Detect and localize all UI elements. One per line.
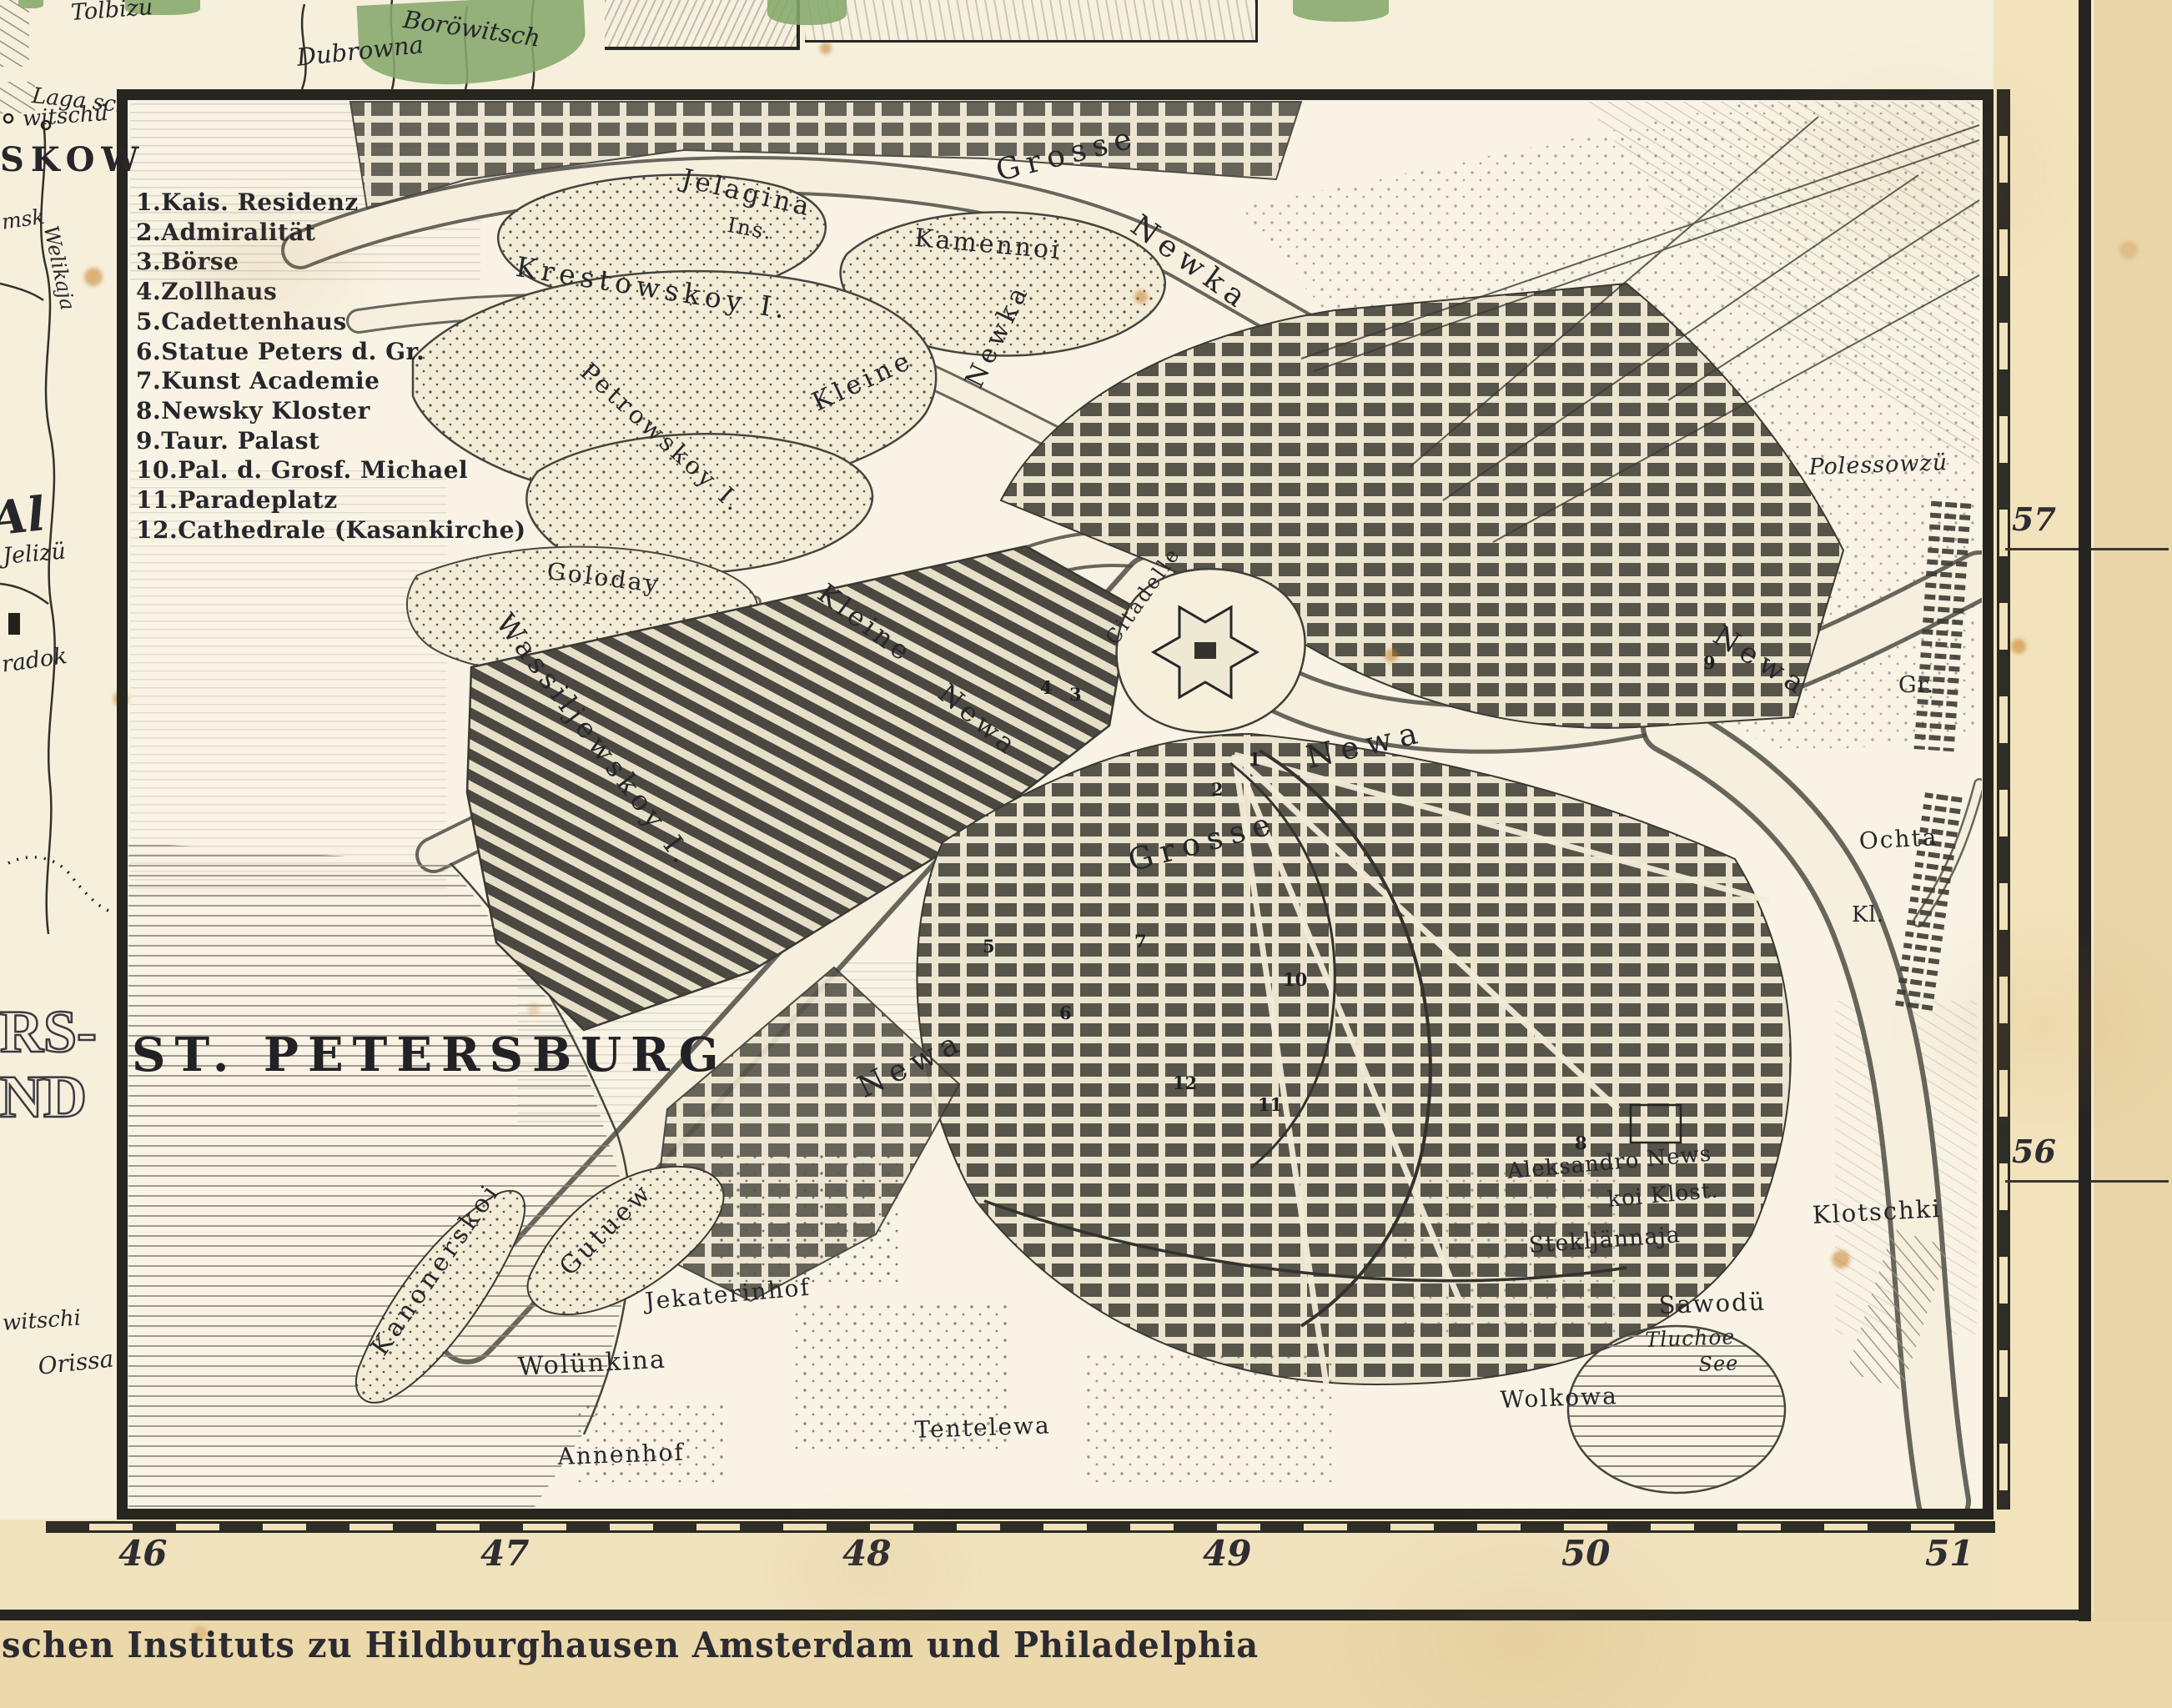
inset-border-frame [117, 89, 1994, 1520]
latitude-57: 57 [2012, 500, 2056, 538]
longitude-47: 47 [480, 1533, 529, 1574]
longitude-50: 50 [1561, 1533, 1610, 1574]
green-region-patch-3 [1293, 0, 1389, 22]
bottom-margin-rule [0, 1610, 2091, 1620]
antique-map-page: 1.Kais. Residenz2.Admiralität3.Börse4.Zo… [0, 0, 2172, 1708]
tower-symbol [8, 613, 20, 635]
longitude-48: 48 [842, 1533, 891, 1574]
top-map-fragment-strip [805, 0, 1258, 43]
outer-margin-rule [2079, 0, 2091, 1621]
latitude-graticule-bar [1997, 89, 2010, 1510]
green-region-patch-2 [767, 0, 847, 25]
town-circle-marker-2 [4, 114, 13, 123]
publisher-imprint: schen Instituts zu Hildburghausen Amster… [2, 1625, 1259, 1665]
longitude-graticule-bar [46, 1521, 1995, 1533]
boundary-dotted-line [8, 857, 115, 913]
latitude-56: 56 [2012, 1133, 2056, 1170]
margin-town-hatch-top [0, 0, 29, 67]
longitude-49: 49 [1203, 1533, 1251, 1574]
longitude-46: 46 [118, 1533, 167, 1574]
longitude-51: 51 [1925, 1533, 1973, 1574]
inset-title: ST. PETERSBURG [132, 1027, 728, 1083]
margin-town-hatch [0, 82, 35, 113]
green-region-patch-4 [18, 0, 43, 8]
green-region-patch-1 [125, 0, 200, 15]
